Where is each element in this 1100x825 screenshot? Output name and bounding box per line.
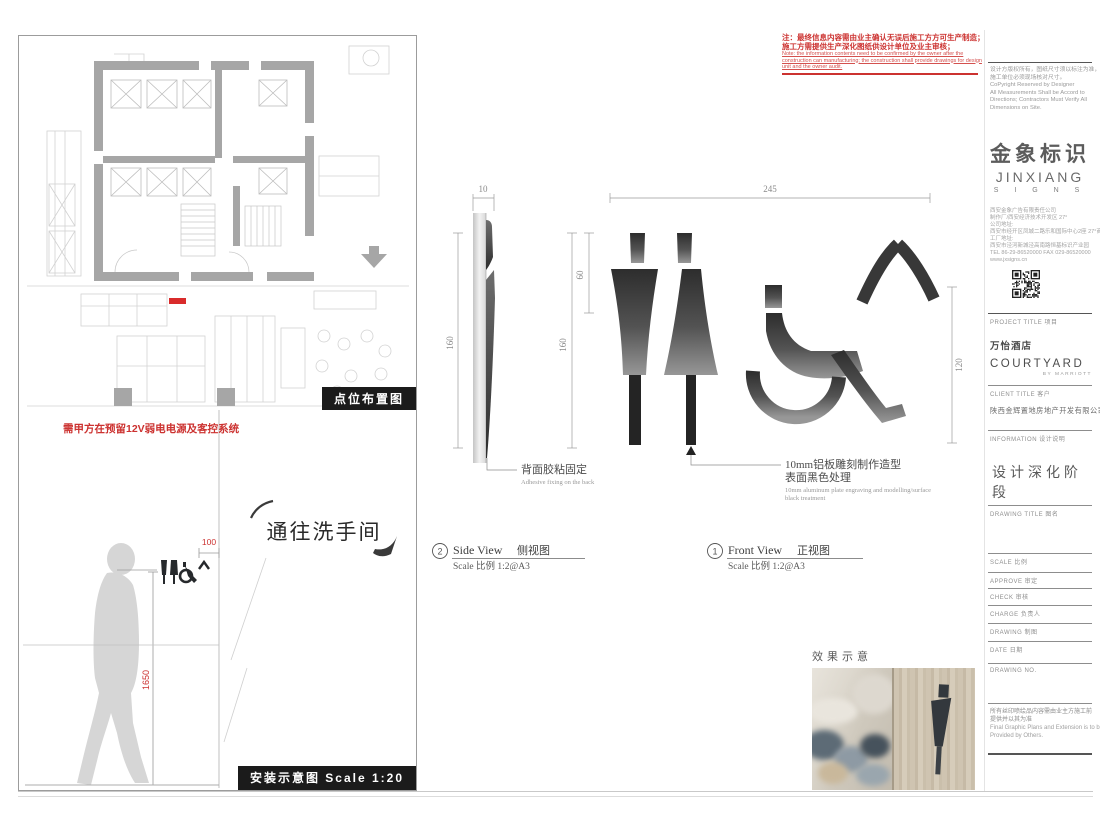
drawing-title-label: DRAWING TITLE 图名 [990,509,1058,518]
warning-en-1: Note: the information contents need to b… [782,51,978,58]
tb-note-cn1: 所有丝印喷绘品内容需由业主方施工前 [990,708,1100,716]
effect-sign-shape [894,668,975,790]
tb-note-en1: Final Graphic Plans and Extension is to … [990,724,1100,732]
svg-text:1650: 1650 [141,670,151,690]
company-info: 西安金象广告有限责任公司 制作厂/西安经济技术开发区 27° 公司地址: 西安市… [990,208,1100,264]
effect-photo-sign-wall [892,668,975,790]
install-panel: 需甲方在预留12V弱电电源及客控系统 100 [18,410,417,791]
mini-sign-icons [161,560,209,584]
dim-120: 120 [954,358,964,372]
side-view-scale: Scale 比例 1:2@A3 [453,560,530,572]
project-name-sub: BY MARRIOTT [990,372,1092,377]
side-view-number: 2 [437,547,442,557]
project-title-label: PROJECT TITLE 项目 [990,317,1057,326]
title-block: 设计方版权所有，图纸尺寸须以标注为准， 施工单位必须现场核对尺寸。 CoPyri… [988,30,1094,792]
tb-rule [988,703,1092,704]
sign-elevation-drawing: 10 160 160 60 背面胶粘固定 Adhesive fixing on … [425,165,990,585]
human-silhouette [77,543,149,785]
side-callout-cn: 背面胶粘固定 [521,462,587,476]
check-label: CHECK 审核 [990,592,1029,601]
logo-signs: S I G N S [988,187,1092,194]
dim-60-lines [584,233,594,313]
dim-245-lines [610,193,930,203]
tb-rule [988,430,1092,431]
copyright-block: 设计方版权所有，图纸尺寸须以标注为准， 施工单位必须现场核对尺寸。 CoPyri… [990,67,1100,112]
front-view-scale: Scale 比例 1:2@A3 [728,560,805,572]
project-name-cn: 万怡酒店 [990,341,1032,352]
front-view-title-cn: 正视图 [797,543,830,557]
drawing-no-label: DRAWING NO. [990,668,1037,674]
floor-plan-drawing [19,36,414,409]
plan-title-badge: 点位布置图 [322,387,416,411]
tb-rule [988,505,1092,506]
warning-line-1: 注：最终信息内容需由业主确认无误后施工方方可生产制造； [782,33,978,42]
front-view-title: 1 Front View 正视图 Scale 比例 1:2@A3 [708,543,864,572]
blade-body [486,270,495,458]
information-label: INFORMATION 设计说明 [990,434,1065,443]
effect-photo-interior [812,668,892,790]
install-red-note: 需甲方在预留12V弱电电源及客控系统 [63,422,240,435]
tb-rule [988,553,1092,554]
company-line: 西安市经开区凤城二路乐和国际中心2座 27°商铺 [990,229,1100,236]
company-line: 制作厂/西安经济技术开发区 27° [990,215,1100,222]
project-name: 万怡酒店 COURTYARD BY MARRIOTT [990,336,1092,377]
plan-core-walls [94,61,387,406]
dim-1650: 1650 [141,572,158,785]
copyright-en3: Directions; Contractors Must Verify All [990,97,1100,105]
tb-rule [988,572,1092,573]
projection-lines [224,558,266,742]
tb-note: 所有丝印喷绘品内容需由业主方施工前 提供并以其为准 Final Graphic … [990,708,1100,740]
warning-line-2: 施工方需提供生产深化图纸供设计单位及业主审核； [782,42,978,51]
dim-10-lines [473,194,494,211]
copyright-en4: Dimensions on Site. [990,105,1100,113]
tb-rule [988,641,1092,642]
tb-rule [988,385,1092,386]
svg-text:100: 100 [202,537,216,547]
client-name: 陕西金辉置地房地产开发有限公司 [990,406,1100,416]
effect-label: 效果示意 [812,648,872,664]
sign-face-text: 通往洗手间 [267,520,382,544]
front-view-title-en: Front View [728,543,782,557]
tb-rule [988,753,1092,755]
tb-rule [988,62,1092,63]
date-label: DATE 日期 [990,645,1023,654]
tb-rule [988,605,1092,606]
front-callout-leader [691,455,781,465]
tb-rule [988,663,1092,664]
copyright-cn2: 施工单位必须现场核对尺寸。 [990,75,1100,83]
drawing-sheet: 点位布置图 需甲方在预留12V弱电电源及客控系统 [0,0,1100,825]
logo-cn: 金象标识 [988,138,1092,168]
effect-photo [812,668,975,790]
front-callout-en2: black treatment [785,495,825,502]
design-phase: 设计深化阶段 [992,462,1094,502]
tb-rule [988,623,1092,624]
blade-head [486,220,493,270]
install-drawing: 需甲方在预留12V弱电电源及客控系统 100 [19,410,414,788]
company-line: 西安金象广告有限责任公司 [990,208,1100,215]
tb-note-en2: Provided by Others. [990,732,1100,740]
company-line: www.jxsigns.cn [990,257,1100,264]
logo-en: JINXIANG [988,169,1092,185]
dim-100: 100 [199,537,219,558]
deco-swoosh-left [251,501,273,518]
front-view: 245 1 [610,184,964,572]
wall-section [473,213,486,463]
dim-160-left: 160 [445,336,455,350]
warning-rule [782,73,978,75]
install-title-badge: 安装示意图 Scale 1:20 [238,766,416,790]
front-callout-cn1: 10mm铝板雕刻制作造型 [785,457,901,471]
dim-160-right: 160 [558,338,568,352]
tb-rule [988,588,1092,589]
side-view-title-en: Side View [453,543,503,557]
tb-note-cn2: 提供并以其为准 [990,716,1100,724]
charge-label: CHARGE 负责人 [990,609,1040,618]
front-callout-cn2: 表面黑色处理 [785,470,851,484]
scale-label: SCALE 比例 [990,557,1027,566]
female-pictogram [664,233,718,445]
qr-code [1012,270,1040,298]
company-logo: 金象标识 JINXIANG S I G N S [988,138,1092,194]
client-label: CLIENT TITLE 客户 [990,389,1050,398]
copyright-cn1: 设计方版权所有，图纸尺寸须以标注为准， [990,67,1100,75]
side-callout-en: Adhesive fixing on the back [521,479,595,486]
company-line: 工厂地址: [990,236,1100,243]
company-line: 公司地址: [990,222,1100,229]
side-view-title: 2 Side View 侧视图 Scale 比例 1:2@A3 [433,543,586,572]
sign-location-marker [169,298,186,304]
dim-10: 10 [479,184,489,194]
drawing-label: DRAWING 制图 [990,627,1037,636]
male-pictogram [611,233,658,445]
dim-245: 245 [763,184,777,194]
side-view: 10 160 160 60 背面胶粘固定 Adhesive fixing on … [433,184,596,572]
side-view-title-cn: 侧视图 [517,543,550,557]
sheet-bottom-rule-2 [18,796,1093,797]
dim-160-right-lines [567,233,577,448]
sheet-bottom-rule-1 [18,791,1093,792]
company-line: TEL 86-29-86520000 FAX 029-86520000 [990,250,1100,257]
warning-en-3: unit and the owner audit. [782,64,978,71]
column-separator [984,30,985,792]
plan-stairs [115,204,281,272]
leader-arrowhead [686,446,696,455]
approve-label: APPROVE 审定 [990,576,1038,585]
dim-60: 60 [575,270,585,280]
side-callout-leader [487,458,517,470]
warning-note: 注：最终信息内容需由业主确认无误后施工方方可生产制造； 施工方需提供生产深化图纸… [782,33,978,75]
copyright-en2: All Measurements Shall be Accord to [990,90,1100,98]
copyright-en1: CoPyright Reserved by Designer [990,82,1100,90]
front-view-number: 1 [712,547,717,557]
wheelchair-pictogram [753,285,906,423]
chevron-arrow [862,244,934,302]
plan-elevators [111,80,287,196]
floor-plan-panel: 点位布置图 [18,35,417,412]
project-name-en: COURTYARD [990,358,1084,370]
tb-rule [988,313,1092,314]
front-callout-en1: 10mm aluminum plate engraving and modell… [785,487,931,494]
company-line: 西安市泾河新城泾高南路恒基标识产业园 [990,243,1100,250]
